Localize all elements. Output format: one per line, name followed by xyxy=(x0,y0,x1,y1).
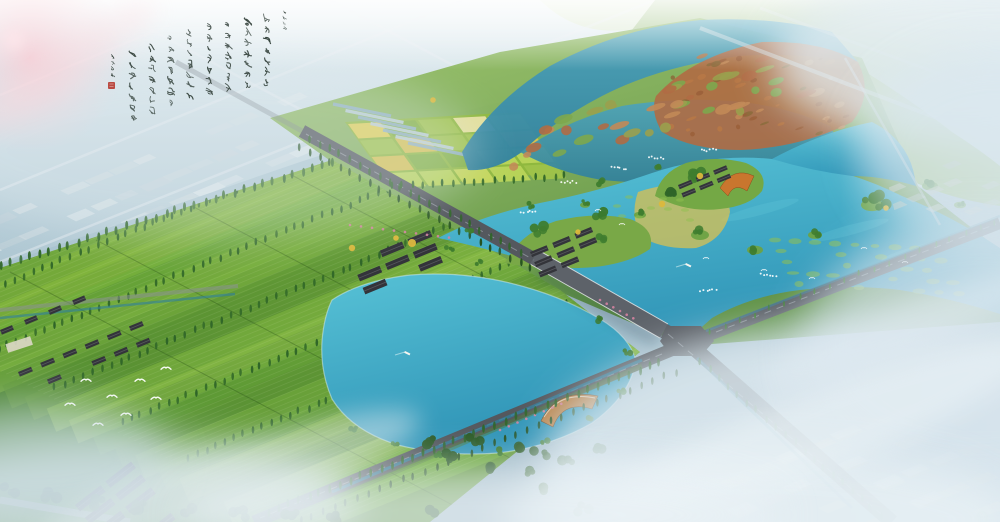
tree xyxy=(66,241,69,250)
tree-clump xyxy=(598,316,603,321)
tree xyxy=(239,369,242,377)
tree xyxy=(725,324,727,330)
tree-clump xyxy=(541,441,545,445)
tree-clump xyxy=(530,224,539,233)
tree-clump xyxy=(529,446,539,456)
tree xyxy=(325,397,328,405)
golden-tree xyxy=(575,229,580,234)
tree xyxy=(489,267,492,275)
tree xyxy=(482,424,485,433)
tree xyxy=(538,421,541,429)
tree xyxy=(342,266,345,274)
tree-clump xyxy=(527,201,532,206)
pink-shrub xyxy=(543,410,546,413)
tree xyxy=(23,273,26,281)
tree xyxy=(172,271,175,279)
egret-dot xyxy=(648,156,650,158)
tree xyxy=(9,258,12,267)
egret-dot xyxy=(654,157,656,159)
tree xyxy=(449,209,452,217)
tree xyxy=(34,329,37,337)
tree xyxy=(494,176,497,184)
lotus-pad xyxy=(809,240,822,245)
tree-clump xyxy=(441,448,451,458)
tree xyxy=(522,175,525,183)
tree xyxy=(202,322,205,330)
tree xyxy=(223,378,226,386)
lotus-pad xyxy=(789,238,802,244)
egret-dot xyxy=(707,290,709,292)
tree xyxy=(303,282,306,290)
tree xyxy=(72,376,75,384)
tree xyxy=(550,417,553,425)
pink-shrub xyxy=(516,421,519,424)
pink-shrub xyxy=(625,313,628,316)
tree xyxy=(432,227,435,235)
egret-dot xyxy=(775,275,777,277)
tree xyxy=(106,238,109,246)
tree xyxy=(71,315,74,323)
tree xyxy=(111,361,114,369)
tree xyxy=(33,268,36,276)
tree xyxy=(478,227,481,235)
lotus-pad xyxy=(664,207,672,211)
egret-dot xyxy=(763,274,765,276)
egret-dot xyxy=(706,150,708,152)
tree xyxy=(53,321,56,329)
tree xyxy=(194,325,197,333)
pink-shrub xyxy=(371,227,374,230)
tree xyxy=(520,249,523,257)
tree xyxy=(19,255,22,264)
tree xyxy=(184,391,187,399)
tree xyxy=(224,438,227,446)
tree xyxy=(268,359,271,367)
tree xyxy=(128,353,131,361)
tree xyxy=(360,259,363,267)
tree xyxy=(97,232,100,241)
tree xyxy=(555,173,558,181)
tree xyxy=(566,393,569,402)
tree xyxy=(145,285,148,293)
tree xyxy=(349,264,352,272)
egret-dot xyxy=(703,149,705,151)
pink-shrub xyxy=(508,425,511,428)
tree-clump xyxy=(475,262,479,266)
tree xyxy=(308,405,311,413)
tree-clump xyxy=(475,436,484,445)
tree xyxy=(230,311,233,319)
pink-shrub xyxy=(382,228,385,231)
egret-dot xyxy=(709,148,711,150)
tree xyxy=(4,280,7,288)
pink-shrub xyxy=(605,302,608,305)
lotus-pad xyxy=(613,204,621,208)
lotus-pad xyxy=(618,214,626,218)
tree xyxy=(139,351,142,359)
pink-shrub xyxy=(525,418,528,421)
tree-clump xyxy=(528,206,532,210)
egret-dot xyxy=(569,182,571,184)
tree-clump xyxy=(515,443,525,453)
tree xyxy=(168,399,171,407)
tree xyxy=(554,399,557,408)
tree xyxy=(155,279,158,287)
tree xyxy=(182,270,185,278)
egret-dot xyxy=(575,182,577,184)
tree xyxy=(220,254,223,262)
tree xyxy=(205,383,208,391)
egret-dot xyxy=(534,211,536,213)
lotus-pad xyxy=(769,238,781,243)
tree xyxy=(543,175,546,183)
tree xyxy=(489,244,492,252)
egret-dot xyxy=(712,148,714,150)
egret-dot xyxy=(702,289,704,291)
tree xyxy=(285,289,288,297)
tree xyxy=(411,454,414,463)
tree xyxy=(322,275,325,283)
tree-clump xyxy=(479,259,484,264)
pink-shrub xyxy=(612,306,615,309)
tree xyxy=(195,389,198,397)
tree-clump xyxy=(666,187,676,197)
egret-dot xyxy=(567,180,569,182)
pink-shrub xyxy=(426,234,429,237)
tree xyxy=(252,426,255,434)
tree xyxy=(41,264,44,272)
tree xyxy=(149,407,152,415)
tree xyxy=(499,237,502,245)
tree xyxy=(529,264,532,272)
tree xyxy=(367,255,370,263)
egret-dot xyxy=(711,288,713,290)
tree xyxy=(138,411,141,419)
lotus-pad xyxy=(775,249,786,253)
tree xyxy=(38,249,41,258)
tree xyxy=(69,253,72,261)
tree xyxy=(783,301,785,307)
tree-clump xyxy=(539,226,547,234)
tree-clump xyxy=(599,177,605,183)
tree xyxy=(493,439,496,447)
tree xyxy=(251,366,254,374)
golden-tree xyxy=(697,173,703,179)
tree xyxy=(241,429,244,437)
tree xyxy=(709,329,711,335)
tree xyxy=(438,205,441,213)
lotus-pad xyxy=(681,208,689,212)
pink-shrub xyxy=(404,231,407,234)
tree xyxy=(275,292,278,300)
egret-dot xyxy=(772,275,774,277)
tree xyxy=(452,436,455,445)
pink-shrub xyxy=(632,317,635,320)
tree xyxy=(61,318,64,326)
tree xyxy=(166,337,169,345)
tree xyxy=(193,265,196,273)
tree xyxy=(473,179,476,187)
tree xyxy=(401,456,404,465)
egret-dot xyxy=(560,181,562,183)
egret-dot xyxy=(716,289,718,291)
tree xyxy=(800,293,802,299)
tree xyxy=(547,400,550,409)
tree xyxy=(458,227,461,235)
egret-dot xyxy=(625,168,627,170)
tree xyxy=(490,233,493,241)
egret-dot xyxy=(709,289,711,291)
tree xyxy=(277,355,280,363)
tree xyxy=(471,450,474,458)
tree xyxy=(578,390,581,399)
tree xyxy=(526,426,529,434)
master-plan-rendering xyxy=(0,0,1000,522)
tree xyxy=(509,255,512,263)
lotus-pad xyxy=(686,218,694,222)
tree xyxy=(313,279,316,287)
tree xyxy=(28,251,31,260)
lotus-pad xyxy=(782,260,793,264)
tree xyxy=(318,400,321,408)
egret-dot xyxy=(531,211,533,213)
tree xyxy=(79,248,82,256)
pink-shrub xyxy=(415,232,418,235)
tree xyxy=(422,448,425,457)
tree-clump xyxy=(817,233,821,237)
egret-dot xyxy=(769,275,771,277)
lens-flare-core xyxy=(4,30,24,50)
tree xyxy=(813,288,815,294)
tree xyxy=(271,419,274,427)
lotus-pad xyxy=(647,206,655,210)
tree xyxy=(505,418,508,427)
tree xyxy=(209,257,212,265)
tree xyxy=(255,238,258,246)
lotus-pad xyxy=(829,241,841,247)
tree xyxy=(78,239,81,248)
egret-dot xyxy=(715,149,717,151)
golden-tree xyxy=(349,245,355,251)
tree xyxy=(260,422,263,430)
tree xyxy=(499,263,502,271)
tree xyxy=(155,342,158,350)
egret-dot xyxy=(656,158,658,160)
tree xyxy=(97,241,100,249)
tree xyxy=(460,214,463,222)
tree xyxy=(43,326,46,334)
lotus-pad xyxy=(787,271,799,275)
tree xyxy=(58,243,61,252)
tree xyxy=(513,176,516,184)
tree-clump xyxy=(811,228,818,235)
tree xyxy=(433,446,436,455)
tree xyxy=(64,381,67,389)
golden-tree xyxy=(408,239,416,247)
egret-dot xyxy=(760,273,762,275)
pink-shrub xyxy=(393,229,396,232)
tree xyxy=(237,247,240,255)
tree xyxy=(86,233,89,242)
pink-shrub xyxy=(360,225,363,228)
egret-dot xyxy=(662,158,664,160)
tree-clump xyxy=(601,235,608,242)
tree xyxy=(449,221,452,229)
egret-dot xyxy=(699,290,701,292)
tree xyxy=(87,246,90,254)
tree xyxy=(514,431,517,439)
tree xyxy=(499,247,502,255)
tree xyxy=(754,313,756,319)
tree-clump xyxy=(695,225,704,234)
tree xyxy=(91,368,94,376)
tree xyxy=(47,247,50,256)
tree-clump xyxy=(599,207,609,217)
tree xyxy=(59,256,62,264)
tree xyxy=(297,407,300,415)
tree xyxy=(162,277,165,285)
tree xyxy=(304,343,307,351)
tree xyxy=(508,243,511,251)
tree xyxy=(120,358,123,366)
egret-dot xyxy=(520,211,522,213)
tree xyxy=(221,317,224,325)
tree xyxy=(240,308,243,316)
tree xyxy=(378,251,381,259)
tree xyxy=(525,408,528,417)
lotus-pad xyxy=(635,215,643,219)
tree xyxy=(503,175,506,183)
tree xyxy=(183,331,186,339)
egret-dot xyxy=(611,166,613,168)
tree xyxy=(258,362,261,370)
tree xyxy=(53,383,56,391)
tree-clump xyxy=(437,451,441,455)
tree xyxy=(534,406,537,415)
egret-dot xyxy=(701,149,703,151)
pink-shrub xyxy=(499,429,502,432)
tree xyxy=(210,321,213,329)
tree-clump xyxy=(498,451,502,455)
tree xyxy=(286,350,289,358)
tree-clump xyxy=(430,435,436,441)
tree xyxy=(289,412,292,420)
tree xyxy=(146,347,149,355)
lotus-pad xyxy=(625,195,633,199)
tree xyxy=(202,260,205,268)
tree-clump xyxy=(749,248,757,256)
tree xyxy=(232,434,235,442)
egret-dot xyxy=(523,212,525,214)
golden-tree xyxy=(393,235,399,241)
pink-shrub xyxy=(599,299,602,302)
egret-dot xyxy=(651,156,653,158)
egret-dot xyxy=(618,167,620,169)
golden-tree xyxy=(659,201,665,207)
egret-dot xyxy=(564,182,566,184)
tree xyxy=(442,223,445,231)
lotus-pad xyxy=(806,271,820,277)
egret-dot xyxy=(766,274,768,276)
egret-dot xyxy=(614,166,616,168)
pink-shrub xyxy=(551,406,554,409)
tree xyxy=(81,312,84,320)
tree xyxy=(14,277,17,285)
egret-dot xyxy=(623,168,625,170)
egret-dot xyxy=(529,210,531,212)
tree xyxy=(504,435,507,443)
tree xyxy=(158,402,161,410)
pink-shrub xyxy=(437,235,440,238)
tree xyxy=(295,348,298,356)
tree xyxy=(176,397,179,405)
egret-dot xyxy=(660,157,662,159)
tree xyxy=(214,381,217,389)
scene-canvas xyxy=(0,0,1000,522)
seal-stamp xyxy=(108,82,115,89)
tree xyxy=(82,372,85,380)
tree xyxy=(739,317,741,323)
tree xyxy=(480,238,483,246)
tree xyxy=(332,271,335,279)
tree xyxy=(563,171,566,179)
tree xyxy=(458,453,461,461)
tree-clump xyxy=(450,248,454,252)
tree xyxy=(174,335,177,343)
tree xyxy=(438,215,441,223)
tree xyxy=(534,173,537,181)
tree xyxy=(245,242,248,250)
tree xyxy=(482,178,485,186)
tree xyxy=(231,373,234,381)
tree xyxy=(249,305,252,313)
tree xyxy=(768,305,770,311)
tree-clump xyxy=(470,229,474,233)
tree xyxy=(468,220,471,228)
tree xyxy=(229,249,232,257)
tree xyxy=(295,285,298,293)
tree-clump xyxy=(624,351,628,355)
tree-clump xyxy=(444,245,449,250)
tree xyxy=(515,412,518,421)
tree xyxy=(493,421,496,430)
pink-shrub xyxy=(560,403,563,406)
pink-shrub xyxy=(619,310,622,313)
pink-shrub xyxy=(448,236,451,239)
lotus-pad xyxy=(659,197,667,201)
tree-clump xyxy=(640,210,645,215)
tree xyxy=(404,239,407,247)
lotus-pad xyxy=(795,281,804,287)
tree xyxy=(280,415,283,423)
tree xyxy=(316,339,319,347)
tree-clump xyxy=(656,164,661,169)
lotus-pad xyxy=(676,198,684,202)
tree xyxy=(51,262,54,270)
tree xyxy=(520,258,523,266)
tree xyxy=(258,301,261,309)
tree xyxy=(101,365,104,373)
tree xyxy=(266,296,269,304)
egret-dot xyxy=(571,180,573,182)
tree xyxy=(427,211,430,219)
tree-clump xyxy=(583,202,587,206)
